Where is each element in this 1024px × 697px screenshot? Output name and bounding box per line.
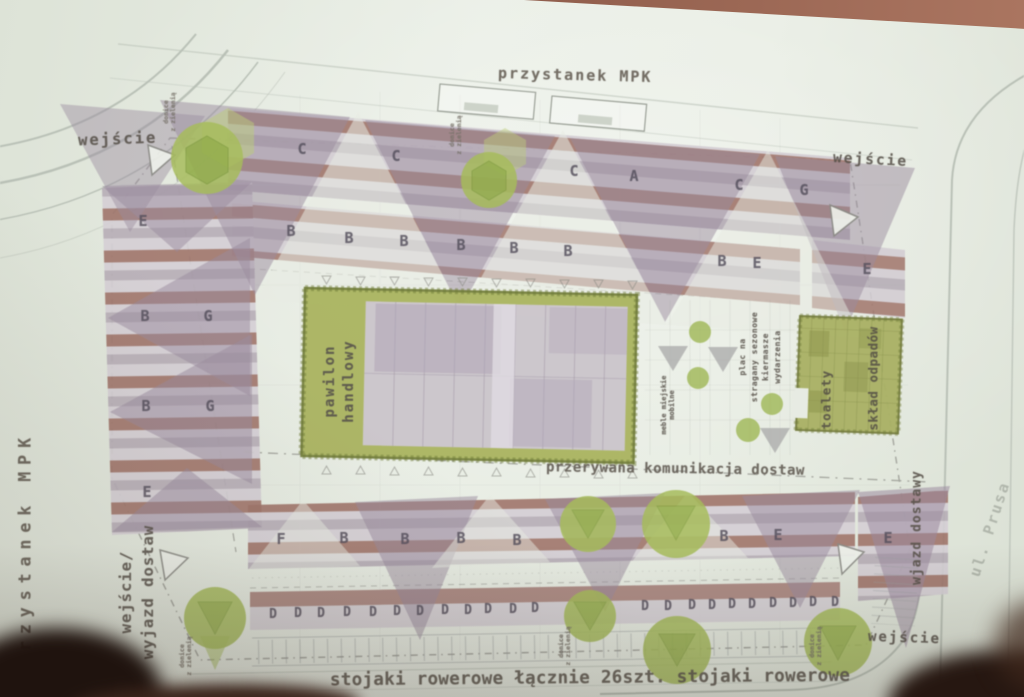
- building-letter: D: [464, 603, 472, 618]
- building-letter: C: [391, 147, 400, 165]
- building-letter: C: [734, 176, 743, 194]
- building-letter: E: [883, 529, 892, 547]
- building-letter: D: [484, 602, 492, 617]
- building-letter: F: [276, 530, 285, 548]
- building-letter: B: [719, 527, 728, 545]
- label-street-furniture-line2: mobilne: [668, 365, 676, 445]
- building-letter: D: [269, 607, 277, 622]
- label-planters-line2: z zielenią: [186, 626, 193, 686]
- label-planters-top-left: donice z zielenią: [163, 82, 177, 142]
- label-event-square: plac na stragany sezonowe kiermasze wyda…: [737, 309, 783, 405]
- label-street-furniture-line1: meble miejskie: [660, 365, 668, 445]
- building-letter: D: [441, 603, 449, 618]
- building-letter: E: [138, 212, 147, 230]
- building-letter: A: [629, 167, 638, 185]
- building-letter: B: [339, 529, 348, 547]
- label-planters-bottom-right: donice z zielenią: [809, 616, 823, 676]
- building-letter: B: [286, 222, 295, 240]
- building-letter: D: [664, 599, 672, 614]
- building-letter: D: [831, 595, 839, 610]
- building-letter: D: [748, 597, 756, 612]
- building-letter: G: [799, 181, 808, 199]
- building-letter: B: [344, 229, 353, 247]
- label-planters-bottom-left: donice z zielenią: [179, 626, 193, 686]
- label-planters-top-center: donice z zielenią: [449, 105, 463, 165]
- building-letter: E: [752, 254, 761, 272]
- label-pavilion-line2: handlowy: [340, 306, 359, 456]
- building-letter: D: [294, 606, 302, 621]
- label-planters-bottom-center: donice z zielenią: [558, 616, 572, 676]
- building-letter: C: [569, 162, 578, 180]
- building-letter: E: [862, 260, 871, 278]
- bus-stop-shelters: [438, 84, 647, 131]
- building-letter: D: [317, 606, 325, 621]
- building-letter: E: [142, 483, 151, 501]
- building-letter: D: [708, 598, 716, 613]
- building-letter: B: [509, 239, 518, 257]
- label-entrance-bottom-right: wejście: [868, 629, 942, 648]
- building-letter: C: [297, 140, 306, 158]
- building-letter: B: [399, 232, 408, 250]
- label-pavilion: pawilon handlowy: [321, 306, 359, 456]
- label-event-square-line3: kiermasze: [760, 309, 772, 405]
- toilets-waste-building: [791, 316, 902, 434]
- building-letter: D: [728, 597, 736, 612]
- label-planters-line2: z zielenią: [456, 105, 463, 165]
- building-letter: B: [456, 236, 465, 254]
- building-letter: D: [416, 604, 424, 619]
- building-letter: B: [563, 242, 572, 260]
- building-letter: D: [369, 605, 377, 620]
- building-letter: D: [509, 602, 517, 617]
- label-toilets: toalety: [819, 355, 834, 445]
- building-letter: B: [512, 531, 521, 549]
- label-pavilion-line1: pawilon: [321, 306, 340, 456]
- label-planters-line2: z zielenią: [816, 616, 823, 676]
- label-planters-line2: z zielenią: [170, 82, 177, 142]
- building-letter: G: [205, 397, 214, 415]
- photo-of-projected-site-plan: przystanek MPK przystanek MPK wejście we…: [0, 0, 1024, 697]
- label-waste-storage: skład odpadów: [866, 319, 881, 439]
- building-letter: E: [773, 526, 782, 544]
- label-street-furniture: meble miejskie mobilne: [660, 365, 676, 445]
- building-letter: G: [203, 307, 212, 325]
- building-letter: D: [393, 604, 401, 619]
- label-planters-line2: z zielenią: [565, 616, 572, 676]
- building-letter: B: [140, 307, 149, 325]
- building-letter: B: [456, 529, 465, 547]
- building-letter: D: [809, 595, 817, 610]
- building-letter: D: [343, 605, 351, 620]
- building-letter: D: [641, 599, 649, 614]
- label-delivery-entry-right: wjazd dostawy: [910, 448, 925, 608]
- building-letter: D: [769, 596, 777, 611]
- building-letter: B: [400, 530, 409, 548]
- label-event-square-line4: wydarzenia: [772, 309, 784, 405]
- building-letter: B: [717, 252, 726, 270]
- label-entrance-top-left: wejście: [78, 129, 158, 150]
- site-plan-drawing: przystanek MPK przystanek MPK wejście we…: [0, 0, 1024, 697]
- building-letter: B: [141, 397, 150, 415]
- building-letter: D: [531, 601, 539, 616]
- label-event-square-line2: stragany sezonowe: [749, 309, 761, 405]
- building-letter: D: [789, 596, 797, 611]
- building-letter: D: [688, 598, 696, 613]
- label-event-square-line1: plac na: [737, 309, 749, 405]
